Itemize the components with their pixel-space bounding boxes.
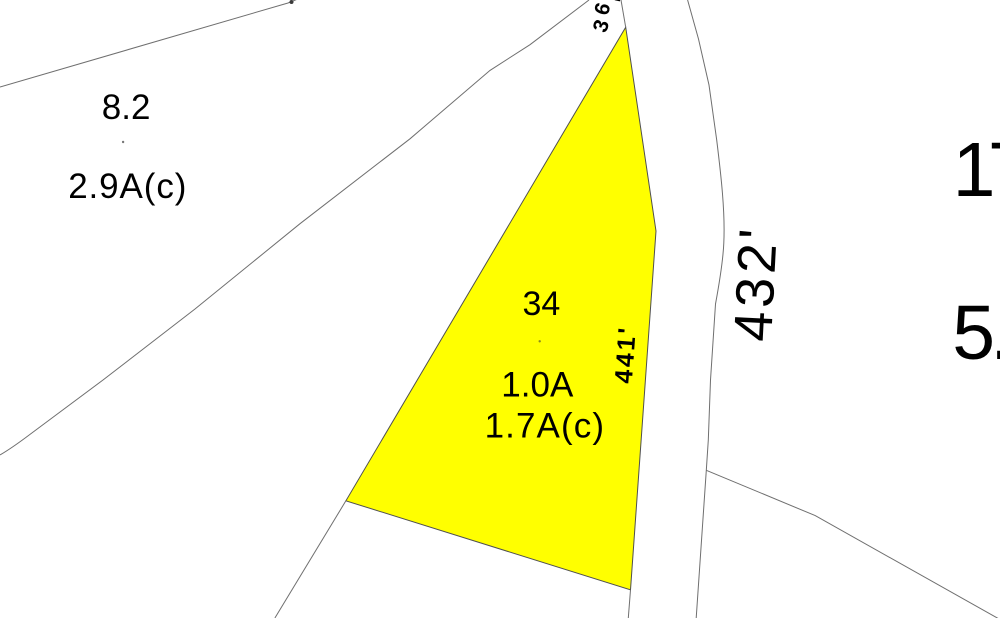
svg-text:441': 441' <box>610 325 642 385</box>
svg-text:1.0A: 1.0A <box>501 366 574 405</box>
svg-text:1.7A(c): 1.7A(c) <box>485 406 606 445</box>
svg-text:17: 17 <box>953 127 1000 213</box>
svg-text:2.9A(c): 2.9A(c) <box>68 167 187 206</box>
svg-text:5.: 5. <box>952 290 1000 376</box>
svg-text:432': 432' <box>723 224 789 343</box>
svg-text:8.2: 8.2 <box>102 88 151 127</box>
svg-text:34: 34 <box>523 285 561 323</box>
